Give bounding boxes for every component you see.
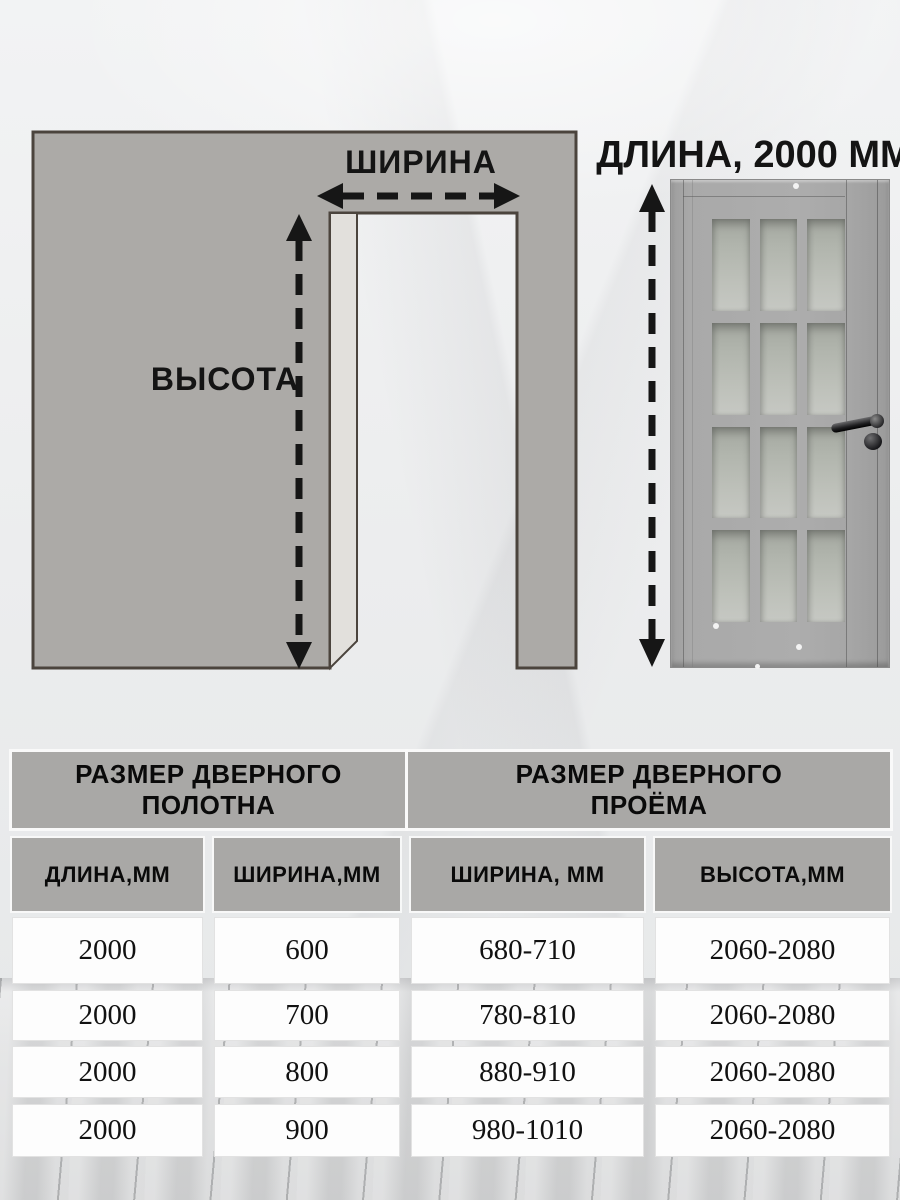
cell-leaf-length: 2000: [12, 990, 203, 1041]
cell-opening-height: 2060-2080: [655, 917, 890, 984]
cell-leaf-width: 800: [214, 1046, 400, 1098]
glass-pane: [807, 530, 845, 622]
door-glass-grid: [712, 219, 845, 622]
glass-pane: [712, 323, 750, 415]
cell-leaf-length: 2000: [12, 1104, 203, 1157]
screw-dot: [796, 644, 802, 650]
glass-pane: [760, 530, 798, 622]
cell-leaf-length: 2000: [12, 1046, 203, 1098]
cell-opening-width: 680-710: [411, 917, 644, 984]
column-header-leaf-length: ДЛИНА,ММ: [12, 838, 203, 911]
glass-pane: [760, 427, 798, 519]
glass-pane: [807, 219, 845, 311]
column-header-opening-width: ШИРИНА, ММ: [411, 838, 644, 911]
glass-pane: [712, 427, 750, 519]
opening-reveal-face: [330, 213, 357, 668]
door-frame-line: [683, 180, 684, 667]
door-length-label: ДЛИНА, 2000 ММ: [596, 134, 900, 176]
cell-opening-width: 780-810: [411, 990, 644, 1041]
door-handle: [831, 412, 887, 456]
group-header-label: РАЗМЕР ДВЕРНОГО ПРОЁМА: [494, 759, 804, 820]
screw-dot: [713, 623, 719, 629]
cell-leaf-length: 2000: [12, 917, 203, 984]
cell-opening-width: 880-910: [411, 1046, 644, 1098]
cell-opening-width: 980-1010: [411, 1104, 644, 1157]
glass-pane: [712, 530, 750, 622]
cell-leaf-width: 600: [214, 917, 400, 984]
cell-leaf-width: 700: [214, 990, 400, 1041]
lock-knob: [864, 433, 882, 450]
cell-opening-height: 2060-2080: [655, 1046, 890, 1098]
glass-pane: [712, 219, 750, 311]
screw-dot: [755, 664, 760, 669]
column-header-opening-height: ВЫСОТА,ММ: [655, 838, 890, 911]
door-rail-line: [683, 196, 845, 197]
cell-opening-height: 2060-2080: [655, 990, 890, 1041]
door-frame-line: [692, 180, 693, 667]
cell-leaf-width: 900: [214, 1104, 400, 1157]
group-header-label: РАЗМЕР ДВЕРНОГО ПОЛОТНА: [54, 759, 364, 820]
wall-shape: [33, 132, 576, 668]
column-header-leaf-width: ШИРИНА,ММ: [214, 838, 400, 911]
door-photo: [670, 179, 890, 668]
group-header-door-opening: РАЗМЕР ДВЕРНОГО ПРОЁМА: [408, 752, 890, 828]
glass-pane: [807, 323, 845, 415]
width-label: ШИРИНА: [345, 144, 497, 180]
height-label: ВЫСОТА: [151, 361, 299, 397]
infographic-page: ШИРИНА ВЫСОТА ДЛИНА, 2000 ММ: [0, 0, 900, 1200]
cell-opening-height: 2060-2080: [655, 1104, 890, 1157]
glass-pane: [760, 323, 798, 415]
size-table: РАЗМЕР ДВЕРНОГО ПОЛОТНА РАЗМЕР ДВЕРНОГО …: [12, 752, 890, 1158]
glass-pane: [760, 219, 798, 311]
screw-dot: [793, 183, 799, 189]
group-header-door-leaf: РАЗМЕР ДВЕРНОГО ПОЛОТНА: [12, 752, 405, 828]
door-length-arrow: [639, 184, 665, 667]
handle-rose: [870, 414, 884, 428]
